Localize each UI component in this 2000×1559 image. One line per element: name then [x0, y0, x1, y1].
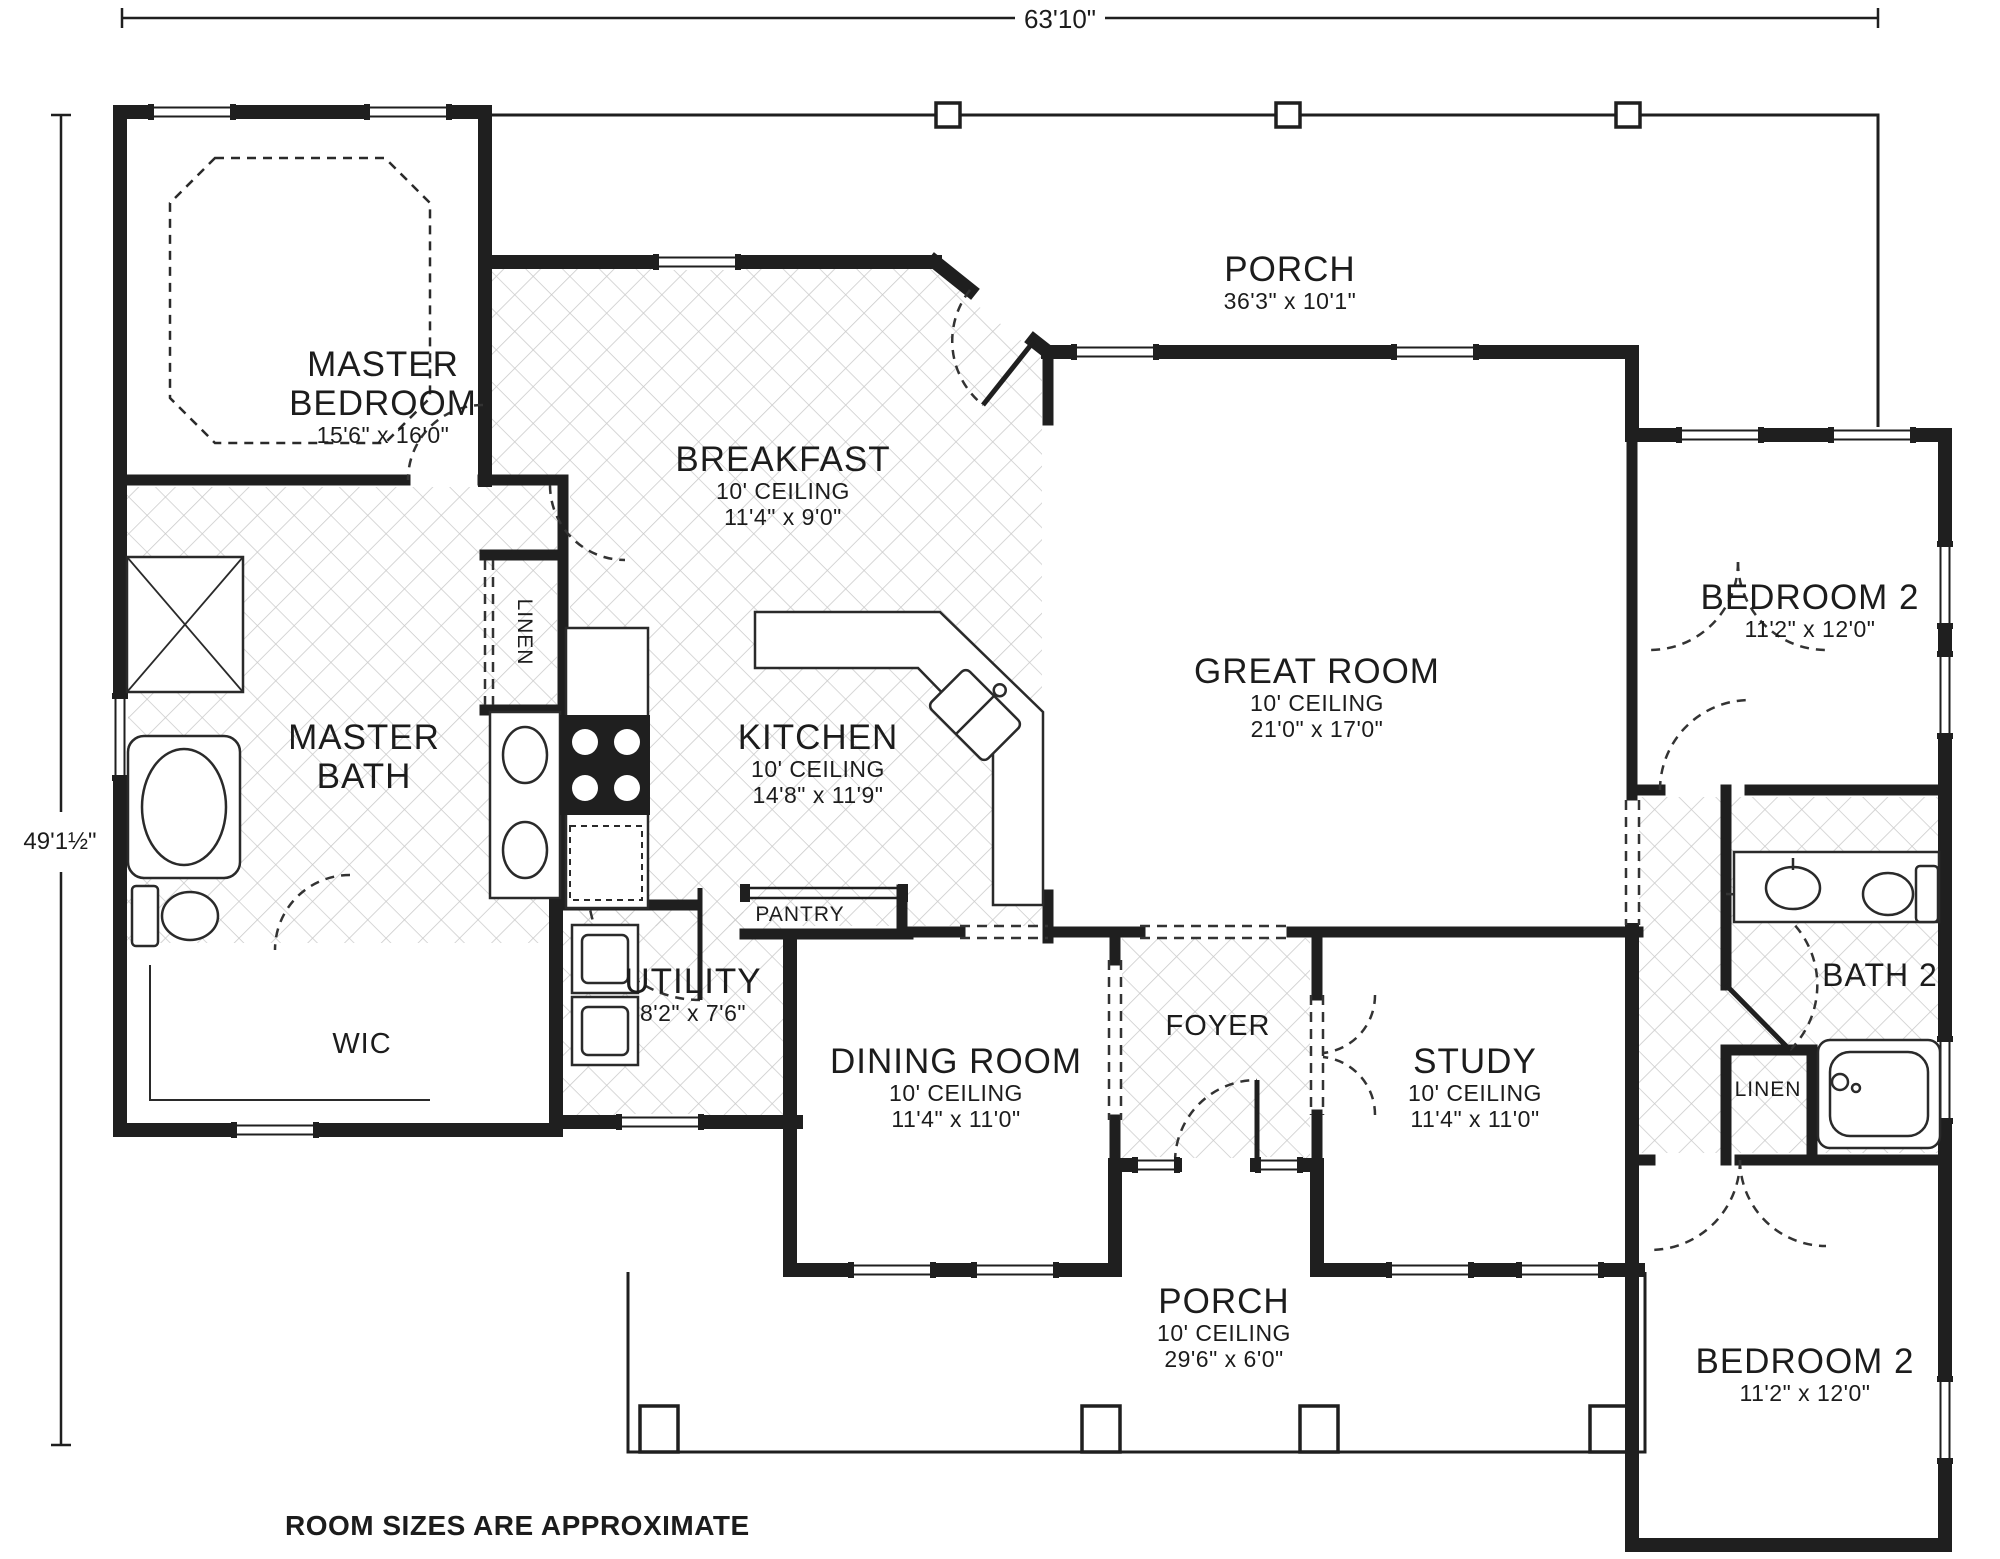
floor-plan: 63'10" 49'1½" PORCH 36'3" x 10'1" MASTER… [0, 0, 2000, 1559]
room-ceiling: 10' CEILING [1157, 1321, 1291, 1347]
overall-width-dimension: 63'10" [1024, 4, 1096, 35]
room-name: GREAT ROOM [1194, 652, 1440, 691]
room-dims: 11'2" x 12'0" [1695, 1381, 1914, 1407]
room-label-kitchen: KITCHEN 10' CEILING 14'8" x 11'9" [738, 718, 899, 809]
room-label-foyer: FOYER [1166, 1010, 1271, 1042]
room-label-linen-master: LINEN [512, 599, 536, 666]
room-dims: 21'0" x 17'0" [1194, 717, 1440, 743]
room-name: STUDY [1408, 1042, 1542, 1081]
room-label-master-bath: MASTER BATH [249, 718, 479, 796]
room-name: MASTER BEDROOM [218, 345, 548, 423]
room-dims: 11'4" x 11'0" [830, 1107, 1082, 1133]
room-dims: 11'2" x 12'0" [1700, 617, 1919, 643]
room-name: PORCH [1224, 250, 1357, 289]
room-label-linen2: LINEN [1735, 1078, 1802, 1102]
room-name: MASTER BATH [249, 718, 479, 796]
room-name: KITCHEN [738, 718, 899, 757]
room-label-study: STUDY 10' CEILING 11'4" x 11'0" [1408, 1042, 1542, 1133]
room-name: UTILITY [624, 962, 761, 1001]
shower-icon [127, 557, 243, 692]
bath2-tub-icon [1818, 1040, 1940, 1148]
toilet-icon [132, 886, 218, 946]
room-name: BREAKFAST [675, 440, 890, 479]
room-dims: 8'2" x 7'6" [624, 1001, 761, 1027]
room-name: BEDROOM 2 [1700, 578, 1919, 617]
bathtub-icon [128, 736, 240, 878]
room-label-bedroom2-lower: BEDROOM 2 11'2" x 12'0" [1695, 1342, 1914, 1407]
vanity-sinks [490, 712, 560, 898]
room-dims: 11'4" x 9'0" [675, 505, 890, 531]
room-name: BEDROOM 2 [1695, 1342, 1914, 1381]
room-label-bath2: BATH 2 [1822, 958, 1938, 994]
room-ceiling: 10' CEILING [1408, 1081, 1542, 1107]
room-label-dining-room: DINING ROOM 10' CEILING 11'4" x 11'0" [830, 1042, 1082, 1133]
room-label-bedroom2-upper: BEDROOM 2 11'2" x 12'0" [1700, 578, 1919, 643]
approximate-sizes-note: ROOM SIZES ARE APPROXIMATE [285, 1510, 750, 1542]
room-name: WIC [332, 1028, 391, 1060]
room-label-breakfast: BREAKFAST 10' CEILING 11'4" x 9'0" [675, 440, 890, 531]
room-name: FOYER [1166, 1010, 1271, 1042]
room-dims: 14'8" x 11'9" [738, 783, 899, 809]
room-label-wic: WIC [332, 1028, 391, 1060]
room-dims: 29'6" x 6'0" [1157, 1347, 1291, 1373]
room-ceiling: 10' CEILING [1194, 691, 1440, 717]
room-ceiling: 10' CEILING [830, 1081, 1082, 1107]
room-label-porch-bottom: PORCH 10' CEILING 29'6" x 6'0" [1157, 1282, 1291, 1373]
room-ceiling: 10' CEILING [738, 757, 899, 783]
room-ceiling: 10' CEILING [675, 479, 890, 505]
room-label-porch-top: PORCH 36'3" x 10'1" [1224, 250, 1357, 315]
room-name: LINEN [512, 599, 536, 666]
room-dims: 36'3" x 10'1" [1224, 289, 1357, 315]
room-label-pantry: PANTRY [755, 903, 844, 927]
overall-height-dimension: 49'1½" [23, 828, 96, 856]
room-name: PORCH [1157, 1282, 1291, 1321]
room-label-master-bedroom: MASTER BEDROOM 15'6" x 16'0" [218, 345, 548, 449]
room-dims: 11'4" x 11'0" [1408, 1107, 1542, 1133]
room-label-utility: UTILITY 8'2" x 7'6" [624, 962, 761, 1027]
room-name: PANTRY [755, 903, 844, 927]
room-name: DINING ROOM [830, 1042, 1082, 1081]
room-name: BATH 2 [1822, 958, 1938, 994]
stove-icon [560, 715, 650, 815]
room-dims: 15'6" x 16'0" [218, 423, 548, 449]
room-name: LINEN [1735, 1078, 1802, 1102]
room-label-great-room: GREAT ROOM 10' CEILING 21'0" x 17'0" [1194, 652, 1440, 743]
